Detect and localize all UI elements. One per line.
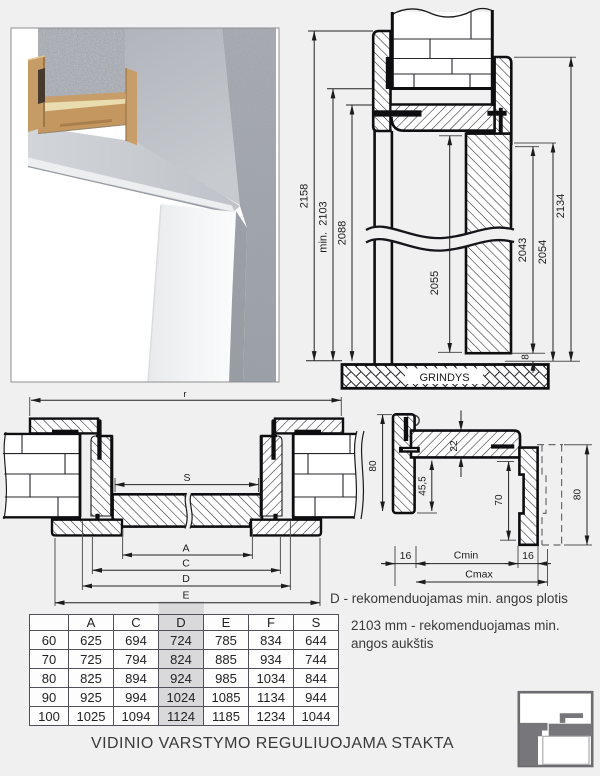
svg-text:D: D [182, 573, 190, 585]
svg-text:2088: 2088 [337, 221, 349, 245]
svg-text:80: 80 [368, 460, 379, 472]
svg-text:r: r [183, 389, 186, 400]
svg-text:GRINDYS: GRINDYS [419, 372, 469, 384]
svg-text:min. 2103: min. 2103 [318, 201, 330, 252]
svg-text:70: 70 [494, 494, 505, 506]
svg-text:E: E [182, 590, 189, 602]
svg-text:2043: 2043 [517, 238, 529, 262]
svg-text:2134: 2134 [555, 194, 567, 218]
svg-text:2055: 2055 [429, 271, 441, 295]
svg-text:S: S [183, 472, 190, 484]
svg-text:80: 80 [573, 489, 584, 501]
svg-text:2054: 2054 [537, 240, 549, 264]
svg-text:16: 16 [400, 550, 412, 562]
svg-text:22: 22 [449, 440, 460, 452]
svg-text:Cmax: Cmax [465, 569, 493, 581]
svg-text:16: 16 [522, 550, 534, 562]
svg-text:2158: 2158 [299, 184, 311, 208]
svg-text:Cmin: Cmin [454, 550, 479, 562]
svg-text:C: C [182, 558, 190, 570]
svg-text:8: 8 [521, 354, 532, 360]
svg-text:A: A [182, 543, 189, 555]
svg-text:45,5: 45,5 [418, 476, 429, 496]
